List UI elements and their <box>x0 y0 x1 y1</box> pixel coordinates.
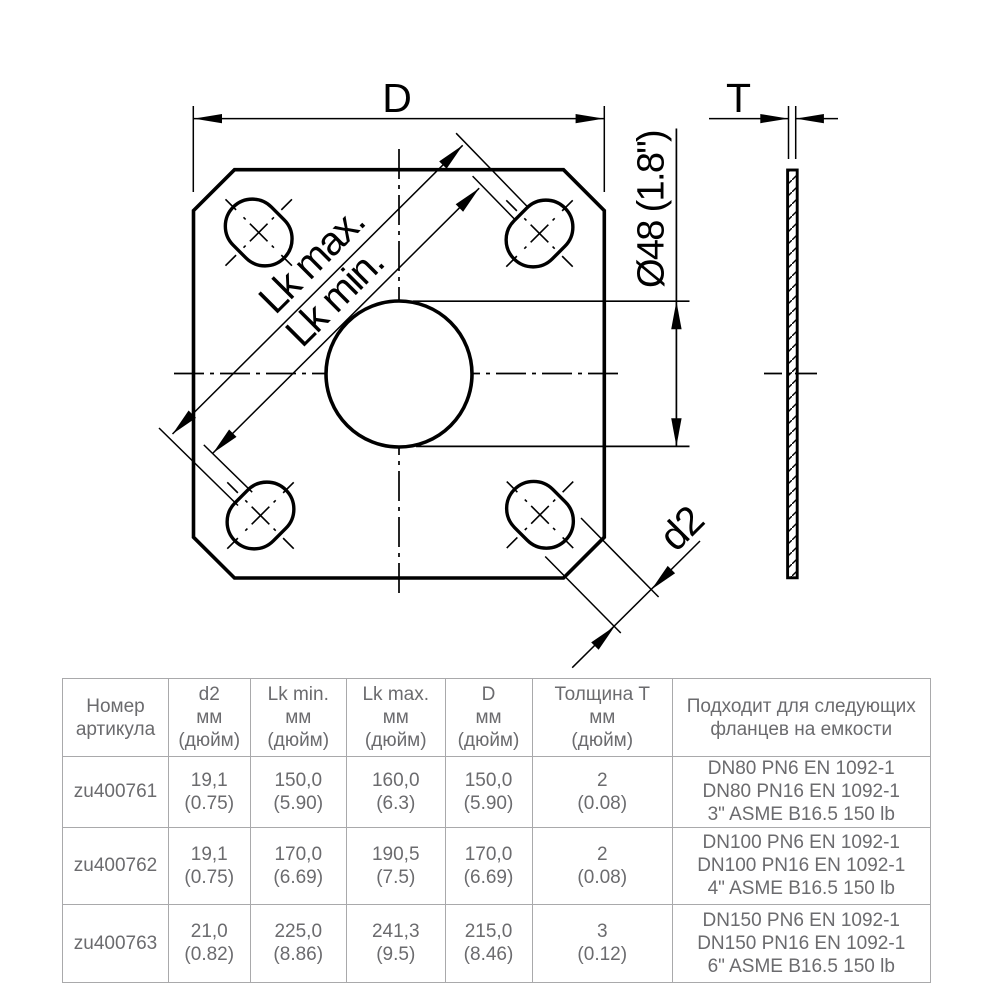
svg-text:Ø48 (1.8"): Ø48 (1.8") <box>631 131 673 288</box>
svg-text:d2: d2 <box>651 498 712 559</box>
svg-text:D: D <box>382 75 412 121</box>
svg-text:T: T <box>726 75 751 121</box>
